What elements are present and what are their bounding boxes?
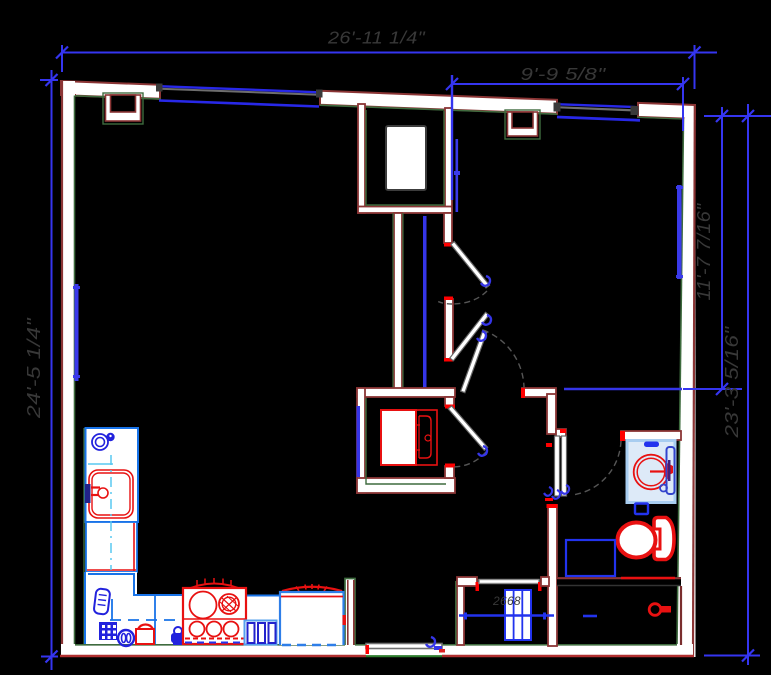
svg-text:23'-3 5/16": 23'-3 5/16"	[721, 325, 742, 439]
svg-text:11'-7 7/16": 11'-7 7/16"	[693, 202, 714, 300]
svg-text:2668: 2668	[492, 594, 521, 608]
svg-text:26'-11 1/4": 26'-11 1/4"	[327, 28, 426, 48]
svg-text:9'-9 5/8": 9'-9 5/8"	[521, 64, 607, 84]
svg-text:24'-5 1/4": 24'-5 1/4"	[24, 316, 44, 419]
